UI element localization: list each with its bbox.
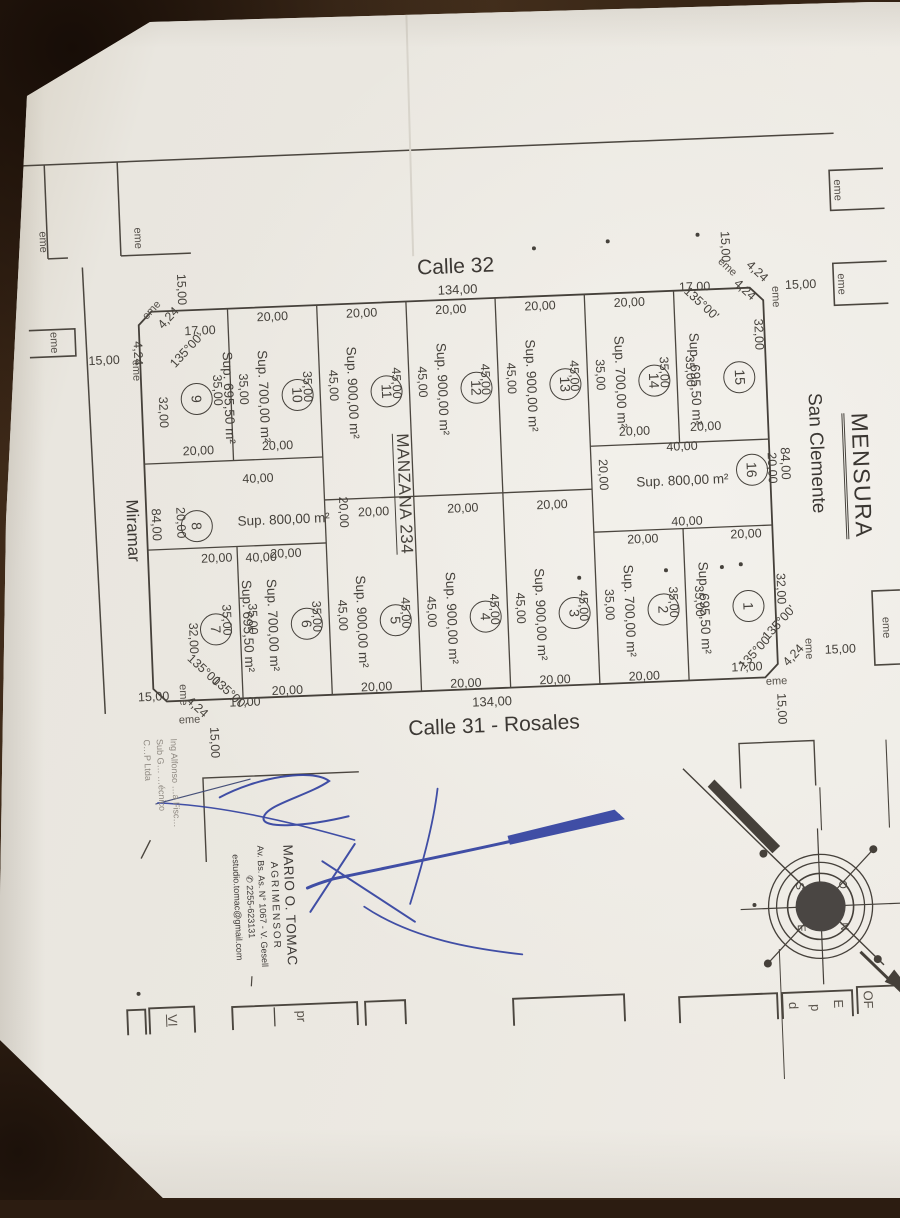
corner-dimension: eme (177, 684, 189, 706)
dimension-label: 35,00 (211, 374, 225, 406)
lot-area-11: Sup. 900,00 m² (344, 346, 361, 439)
street-label-calle32: Calle 32 (417, 254, 495, 278)
dimension-label: 45,00 (478, 364, 492, 396)
dimension-label: 40,00 (666, 440, 698, 454)
form-box-label-p: p (809, 1004, 822, 1012)
lot-area-3: Sup. 900,00 m² (532, 568, 549, 661)
monument-label: eme (880, 617, 892, 639)
side-total-left: 84,00 (150, 508, 164, 541)
dimension-label: 20,00 (174, 507, 188, 539)
dimension-label: 20,00 (346, 306, 378, 320)
lot-area-14: Sup. 700,00 m² (612, 336, 629, 429)
corner-dimension: 15,00 (775, 693, 789, 725)
compass-rose (683, 760, 900, 1003)
compass-letter-e: E (795, 924, 806, 932)
corner-dimension: 32,00 (186, 622, 200, 654)
dimension-label: 45,00 (577, 590, 591, 622)
street-label-san-clemente: San Clemente (804, 393, 828, 514)
frontage-total-bottom: 134,00 (472, 694, 512, 709)
form-box-label-pr: pr (295, 1010, 308, 1022)
corner-dimension: 15,00 (174, 274, 188, 306)
side-total-right: 84,00 (779, 447, 793, 480)
street-reference-lines (7, 133, 855, 717)
corner-dimension: eme (769, 286, 781, 308)
corner-dimension: 15,00 (824, 643, 856, 657)
monument-label: eme (36, 231, 48, 253)
dimension-label: 45,00 (335, 599, 349, 631)
lot-area-13: Sup. 900,00 m² (523, 339, 540, 432)
dimension-label: 40,00 (242, 472, 274, 486)
dimension-label: 20,00 (628, 669, 660, 683)
dimension-label: 35,00 (594, 359, 608, 391)
dimension-label: 20,00 (435, 303, 467, 317)
lot-area-10: Sup. 700,00 m² (255, 350, 272, 443)
frontage-total-top: 134,00 (437, 282, 477, 297)
corner-dimension: eme (802, 638, 814, 660)
dimension-label: 20,00 (765, 452, 779, 484)
dimension-label: 20,00 (447, 502, 479, 516)
dimension-label: 20,00 (619, 425, 651, 439)
block-title: MANZANA 234 (392, 433, 416, 554)
dimension-label: 20,00 (524, 299, 556, 313)
lot-area-6: Sup. 700,00 m² (264, 579, 281, 672)
compass-letter-s: S (793, 882, 804, 890)
corner-dimension: eme (130, 360, 142, 382)
dimension-label: 35,00 (246, 603, 260, 635)
dimension-label: 35,00 (309, 601, 323, 633)
dimension-label: 20,00 (358, 505, 390, 519)
dimension-label: 35,00 (603, 589, 617, 621)
signature-ink (155, 762, 630, 969)
dimension-label: 20,00 (627, 532, 659, 546)
dimension-label: 35,00 (237, 373, 251, 405)
dimension-label: 35,00 (300, 371, 314, 403)
dimension-label: 45,00 (389, 367, 403, 399)
dimension-label: 20,00 (257, 310, 289, 324)
corner-dimension: 32,00 (156, 396, 170, 428)
dimension-label: 35,00 (657, 356, 671, 388)
dimension-label: 35,00 (692, 585, 706, 617)
dimension-label: 45,00 (568, 360, 582, 392)
monument-label: eme (131, 227, 143, 249)
dimension-label: 45,00 (514, 592, 528, 624)
dimension-label: 45,00 (488, 593, 502, 625)
street-label-miramar: Miramar (123, 499, 142, 562)
dimension-label: 20,00 (596, 459, 610, 491)
dimension-label: 20,00 (337, 496, 351, 528)
dimension-label: 20,00 (690, 420, 722, 434)
corner-dimension: eme (179, 715, 201, 727)
lot-area-4: Sup. 900,00 m² (443, 572, 460, 665)
dimension-label: 20,00 (450, 677, 482, 691)
dimension-label: 35,00 (220, 604, 234, 636)
compass-letter-n: N (838, 922, 849, 930)
dimension-label: 40,00 (245, 551, 277, 565)
corner-dimension: 15,00 (208, 727, 222, 759)
lot-area-12: Sup. 900,00 m² (433, 343, 450, 436)
survey-plan-paper: Calle 32 134,00 134,00 Calle 31 - Rosale… (0, 0, 900, 1200)
corner-dimension: 32,00 (774, 573, 788, 605)
lot-area-5: Sup. 900,00 m² (353, 575, 370, 668)
form-box-label-vi: VI (166, 1014, 179, 1027)
dimension-label: 45,00 (504, 362, 518, 394)
dimension-label: 20,00 (361, 680, 393, 694)
dimension-label: 20,00 (183, 444, 215, 458)
dimension-label: 45,00 (398, 597, 412, 629)
dimension-label: 20,00 (730, 527, 762, 541)
form-box-label-d: d (787, 1002, 800, 1010)
photo-background: Calle 32 134,00 134,00 Calle 31 - Rosale… (0, 0, 900, 1200)
monument-label: eme (47, 332, 59, 354)
dimension-label: 20,00 (613, 296, 645, 310)
dimension-label: 35,00 (683, 355, 697, 387)
dimension-label: 40,00 (671, 515, 703, 529)
dimension-label: 20,00 (201, 551, 233, 565)
dimension-label: 45,00 (326, 370, 340, 402)
dimension-label: 20,00 (539, 673, 571, 687)
lot-area-2: Sup. 700,00 m² (621, 564, 638, 657)
monument-label: eme (831, 179, 843, 201)
dimension-label: 20,00 (262, 439, 294, 453)
corner-dimension: 15,00 (785, 278, 817, 292)
dimension-label: 20,00 (272, 684, 304, 698)
form-box-label-of: OF (862, 990, 876, 1009)
corner-dimension: 32,00 (752, 319, 766, 351)
corner-dimension: 15,00 (718, 231, 732, 263)
plan-drawing: Calle 32 134,00 134,00 Calle 31 - Rosale… (0, 0, 900, 1218)
compass-letter-o: O (836, 880, 847, 889)
approval-stamp-text: Ing Alfonso …a Fisc… Sub G… …écnico C…P … (139, 738, 185, 870)
corner-dimension: 15,00 (88, 354, 120, 368)
page-title: MENSURA (841, 412, 875, 539)
monument-label: eme (835, 273, 847, 295)
dimension-label: 35,00 (666, 586, 680, 618)
corner-dimension: eme (766, 676, 788, 688)
surveyor-block: MARIO O. TOMAC AGRIMENSOR Av. Bs. As. N°… (229, 820, 301, 992)
form-box-label-e: E (832, 999, 845, 1008)
dimension-label: 45,00 (415, 366, 429, 398)
dimension-label: 20,00 (536, 498, 568, 512)
dimension-label: 45,00 (424, 596, 438, 628)
corner-dimension: 15,00 (138, 690, 170, 704)
